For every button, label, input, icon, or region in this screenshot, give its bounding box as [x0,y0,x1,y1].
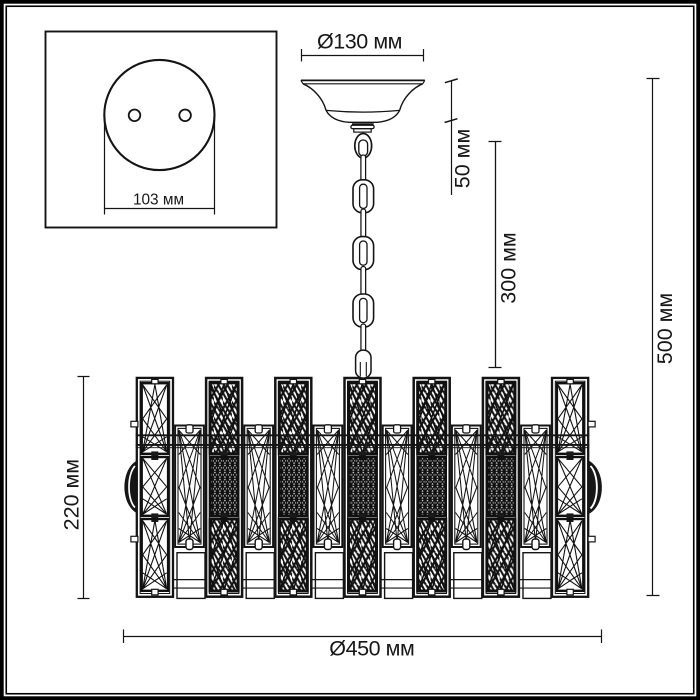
svg-text:500 мм: 500 мм [653,293,677,364]
svg-text:Ø450 мм: Ø450 мм [329,637,414,661]
svg-text:103 мм: 103 мм [133,192,184,209]
svg-text:300 мм: 300 мм [497,232,521,303]
svg-text:Ø130 мм: Ø130 мм [317,30,402,54]
svg-text:50 мм: 50 мм [450,129,474,188]
svg-text:220 мм: 220 мм [60,459,84,530]
